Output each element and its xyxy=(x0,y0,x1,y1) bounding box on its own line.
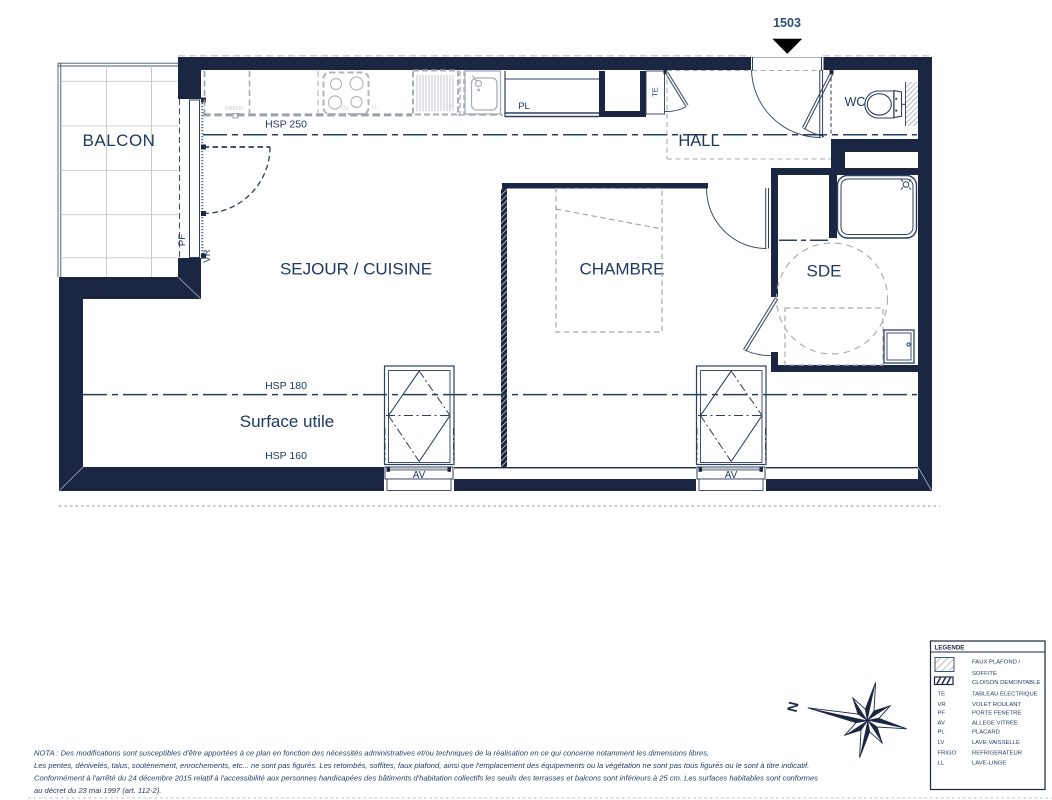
svg-text:LAVE-LINGE: LAVE-LINGE xyxy=(972,761,1006,767)
svg-text:FRIGO: FRIGO xyxy=(225,106,243,112)
svg-text:BALCON: BALCON xyxy=(83,131,156,150)
svg-text:au décret du 23 mai 1997 (art.: au décret du 23 mai 1997 (art. 112-2). xyxy=(34,786,161,795)
svg-text:WC: WC xyxy=(845,95,866,109)
svg-text:NOTA : Des modifications sont: NOTA : Des modifications sont susceptibl… xyxy=(34,749,709,758)
svg-text:VR: VR xyxy=(938,702,946,708)
svg-text:LEGENDE: LEGENDE xyxy=(935,645,965,652)
svg-text:SDE: SDE xyxy=(807,262,842,281)
svg-text:SOFFITE: SOFFITE xyxy=(972,671,997,677)
svg-text:REFRIGERATEUR: REFRIGERATEUR xyxy=(972,751,1022,757)
svg-text:LV: LV xyxy=(938,740,945,746)
svg-text:LAVE-VAISSELLE: LAVE-VAISSELLE xyxy=(972,740,1020,746)
svg-text:Surface utile: Surface utile xyxy=(240,412,335,431)
svg-text:CHAMBRE: CHAMBRE xyxy=(579,260,664,279)
svg-text:PL: PL xyxy=(518,101,530,112)
svg-text:Conformément à l'arrêté du 24: Conformément à l'arrêté du 24 décembre 2… xyxy=(34,774,818,783)
svg-text:LL: LL xyxy=(372,105,378,111)
svg-text:LL: LL xyxy=(938,761,945,767)
svg-text:AV: AV xyxy=(938,721,945,727)
svg-text:PF: PF xyxy=(177,234,188,246)
svg-text:FAUX PLAFOND /: FAUX PLAFOND / xyxy=(972,660,1020,666)
svg-text:PORTE FENETRE: PORTE FENETRE xyxy=(972,711,1021,717)
svg-text:TE: TE xyxy=(938,692,946,698)
svg-text:PL: PL xyxy=(938,730,946,736)
svg-text:CU: CU xyxy=(341,106,349,112)
svg-text:TABLEAU ELECTRIQUE: TABLEAU ELECTRIQUE xyxy=(972,692,1038,698)
svg-text:Les pentes, dénivelés, talus,: Les pentes, dénivelés, talus, soutènemen… xyxy=(34,761,809,770)
svg-text:HSP 180: HSP 180 xyxy=(265,380,307,392)
svg-text:ALLEGE VITREE: ALLEGE VITREE xyxy=(972,721,1018,727)
svg-text:FRIGO: FRIGO xyxy=(938,751,957,757)
svg-text:SEJOUR / CUISINE: SEJOUR / CUISINE xyxy=(280,260,432,279)
svg-text:1503: 1503 xyxy=(773,16,801,30)
svg-text:PLACARD: PLACARD xyxy=(972,730,1000,736)
svg-text:HSP 160: HSP 160 xyxy=(265,450,307,462)
svg-text:CLOISON DEMONTABLE: CLOISON DEMONTABLE xyxy=(972,680,1040,686)
svg-text:TE: TE xyxy=(651,87,660,97)
svg-text:VR: VR xyxy=(202,249,213,262)
svg-text:VOLET ROULANT: VOLET ROULANT xyxy=(972,702,1021,708)
svg-text:HSP 250: HSP 250 xyxy=(265,119,307,131)
svg-text:LV: LV xyxy=(446,105,453,111)
svg-text:PF: PF xyxy=(938,711,946,717)
